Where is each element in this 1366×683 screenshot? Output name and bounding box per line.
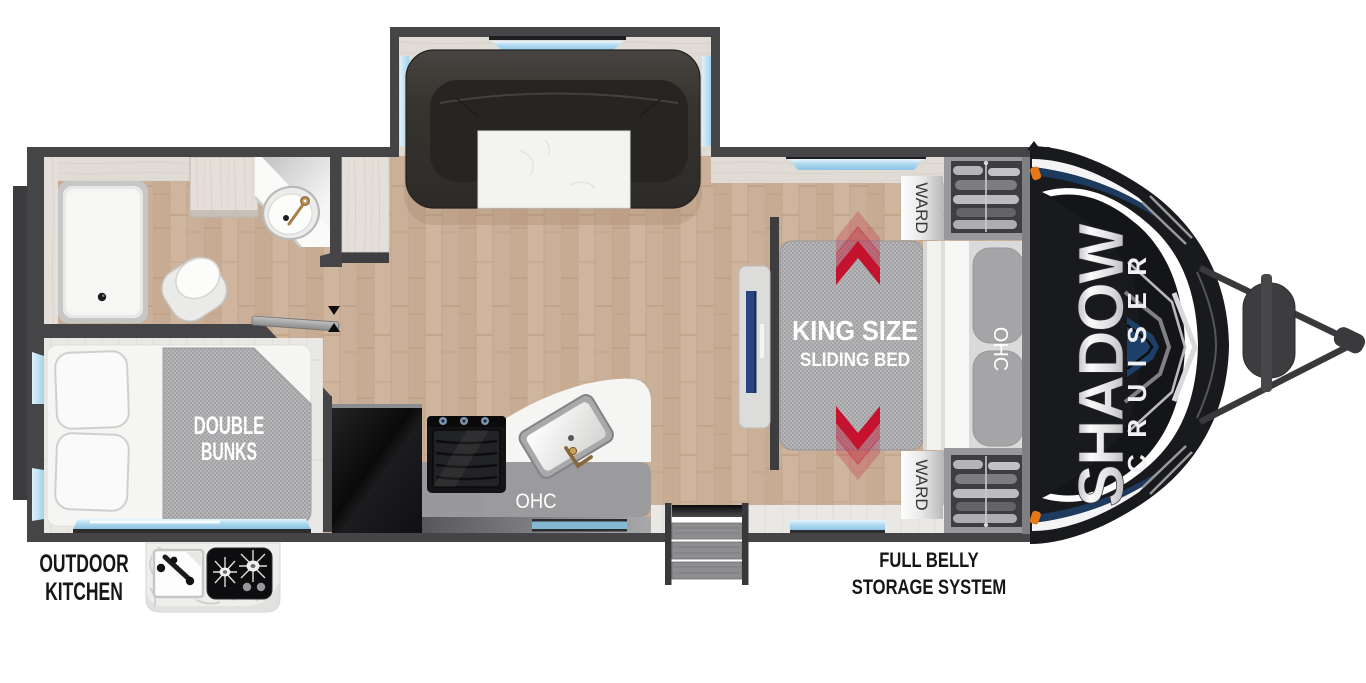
svg-text:KING SIZE: KING SIZE (792, 315, 918, 347)
svg-text:WARD: WARD (912, 459, 931, 510)
svg-text:DOUBLE: DOUBLE (194, 412, 265, 440)
svg-text:OUTDOOR: OUTDOOR (39, 549, 129, 578)
svg-text:OHC: OHC (515, 490, 556, 513)
svg-text:SLIDING BED: SLIDING BED (800, 349, 910, 370)
svg-text:OHC: OHC (989, 327, 1011, 371)
svg-text:KITCHEN: KITCHEN (45, 577, 123, 606)
svg-text:CRUISER: CRUISER (1122, 240, 1152, 473)
svg-text:BUNKS: BUNKS (201, 438, 257, 466)
svg-text:STORAGE SYSTEM: STORAGE SYSTEM (852, 576, 1006, 599)
svg-text:WARD: WARD (912, 182, 931, 233)
svg-text:FULL BELLY: FULL BELLY (879, 549, 979, 572)
